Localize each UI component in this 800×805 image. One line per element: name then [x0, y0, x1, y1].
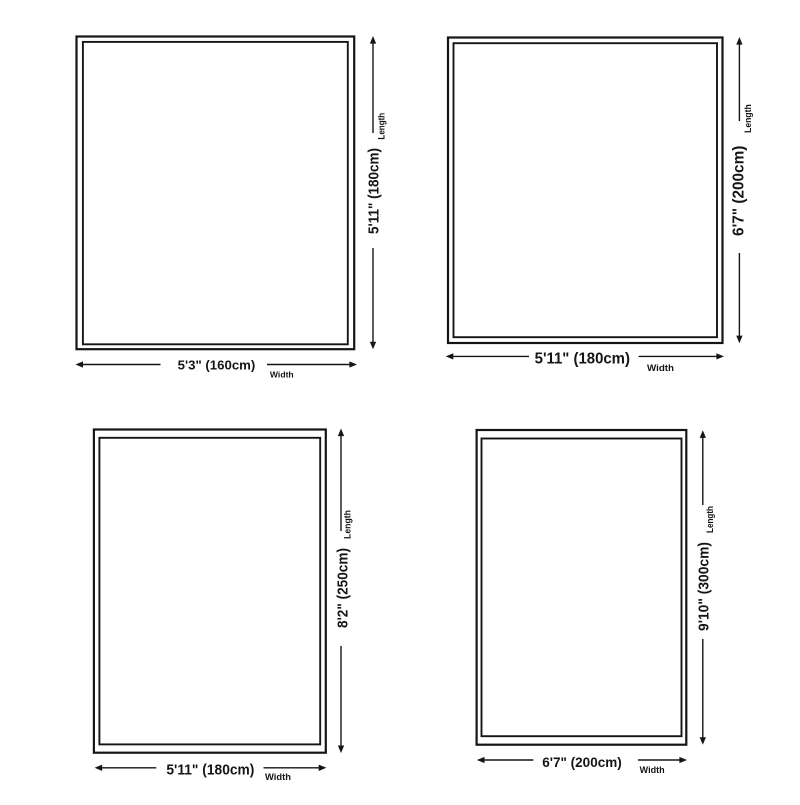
svg-text:Length: Length: [705, 506, 715, 533]
svg-text:8'2" (250cm): 8'2" (250cm): [335, 548, 352, 628]
svg-text:6'7" (200cm): 6'7" (200cm): [731, 146, 748, 236]
svg-text:Width: Width: [640, 765, 665, 775]
svg-text:Length: Length: [377, 113, 387, 140]
svg-text:5'11" (180cm): 5'11" (180cm): [366, 148, 383, 234]
svg-text:5'11" (180cm): 5'11" (180cm): [535, 351, 630, 368]
svg-text:9'10" (300cm): 9'10" (300cm): [696, 542, 713, 631]
svg-text:Length: Length: [743, 104, 753, 133]
svg-text:5'3" (160cm): 5'3" (160cm): [178, 358, 256, 373]
svg-text:Length: Length: [343, 510, 353, 539]
svg-text:Width: Width: [265, 772, 291, 783]
svg-text:5'11" (180cm): 5'11" (180cm): [166, 763, 254, 779]
svg-text:Width: Width: [647, 363, 674, 374]
svg-text:6'7" (200cm): 6'7" (200cm): [542, 754, 622, 770]
svg-text:Width: Width: [270, 369, 294, 379]
